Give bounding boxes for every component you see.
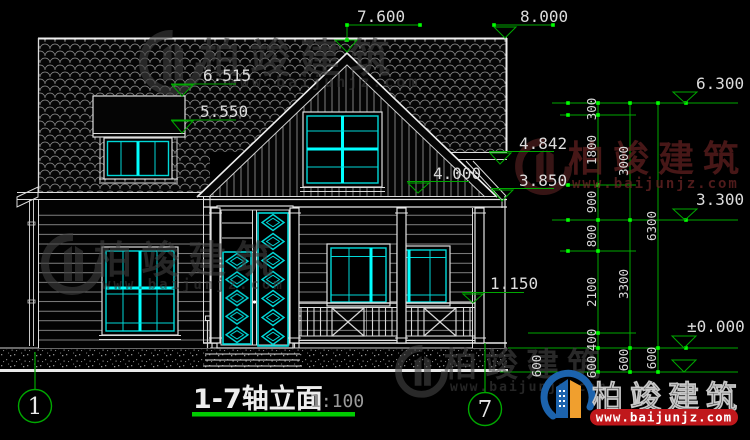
level-marker-right-mid: 3.300	[673, 190, 744, 220]
svg-text:800: 800	[584, 225, 599, 248]
svg-text:3000: 3000	[616, 146, 631, 176]
ground-band	[0, 348, 508, 371]
svg-text:6.300: 6.300	[696, 74, 744, 93]
svg-text:1800: 1800	[584, 135, 599, 165]
svg-text:300: 300	[584, 98, 599, 121]
svg-text:4.842: 4.842	[519, 134, 567, 153]
svg-text:900: 900	[584, 191, 599, 214]
svg-text:5.550: 5.550	[200, 102, 248, 121]
svg-text:3300: 3300	[616, 269, 631, 299]
cad-canvas: 柏竣建筑 www.baijunjz.com 柏竣建筑 www.baijunjz.…	[0, 0, 750, 440]
door-knob	[253, 300, 256, 303]
title-underline	[192, 412, 355, 417]
svg-text:1.150: 1.150	[490, 274, 538, 293]
svg-text:3.850: 3.850	[519, 171, 567, 190]
svg-text:4.000: 4.000	[433, 164, 481, 183]
svg-text:400: 400	[584, 329, 599, 352]
svg-text:600: 600	[529, 355, 544, 378]
logo-building-orange	[570, 380, 581, 418]
svg-text:6.515: 6.515	[203, 66, 251, 85]
level-marker-ridge: 8.000	[494, 7, 568, 38]
porch-column	[473, 208, 486, 343]
grid-bubble-left: 1	[19, 390, 52, 423]
gable-window	[300, 112, 385, 192]
drawing-title: 1-7轴立面	[193, 383, 323, 415]
dormer-window	[104, 138, 172, 179]
porch-window-left	[327, 244, 390, 306]
watermark-name: 柏竣建筑	[94, 238, 282, 282]
level-marker-right-eave-bottom: 3.850	[491, 171, 567, 201]
grid-bubble-right: 7	[469, 393, 502, 426]
level-marker-ground: ±0.000	[672, 317, 745, 348]
svg-text:±0.000: ±0.000	[687, 317, 745, 336]
svg-text:7.600: 7.600	[357, 7, 405, 26]
level-marker-right-top: 6.300	[673, 74, 744, 103]
svg-text:600: 600	[584, 356, 599, 379]
svg-text:600: 600	[644, 347, 659, 370]
watermark-url: www.baijunjz.com	[102, 277, 285, 293]
svg-text:1: 1	[28, 394, 43, 420]
svg-text:600: 600	[616, 349, 631, 372]
svg-text:3.300: 3.300	[696, 190, 744, 209]
porch-column	[288, 208, 301, 343]
porch-column	[395, 208, 408, 343]
svg-text:6300: 6300	[644, 211, 659, 241]
watermark-url: www.baijunjz.com	[228, 73, 421, 91]
drawing-scale: 1:100	[310, 391, 364, 412]
svg-text:8.000: 8.000	[520, 7, 568, 26]
title-block: 1-7轴立面 1:100	[192, 383, 364, 417]
svg-text:7: 7	[478, 397, 493, 423]
svg-text:2100: 2100	[584, 277, 599, 307]
level-marker-foundation	[672, 360, 696, 372]
logo-url: www.baijunjz.com	[596, 410, 732, 425]
